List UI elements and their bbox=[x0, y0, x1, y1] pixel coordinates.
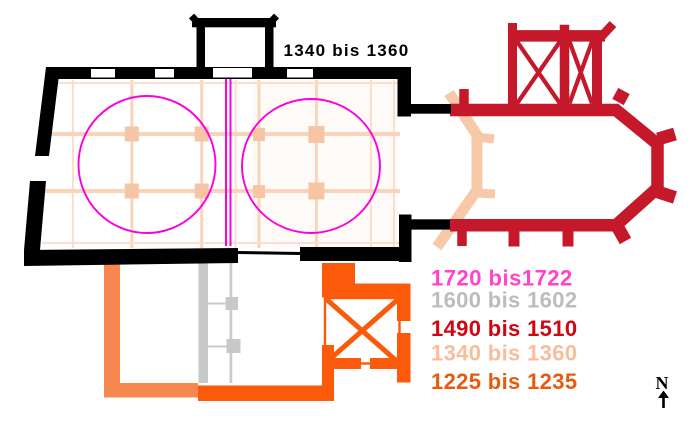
svg-text:N: N bbox=[656, 373, 669, 393]
svg-text:1340 bis 1360: 1340 bis 1360 bbox=[431, 341, 577, 366]
svg-text:1340 bis 1360: 1340 bis 1360 bbox=[284, 41, 410, 60]
svg-text:1225 bis 1235: 1225 bis 1235 bbox=[431, 369, 577, 394]
svg-text:1600 bis 1602: 1600 bis 1602 bbox=[431, 288, 577, 313]
svg-text:1490 bis 1510: 1490 bis 1510 bbox=[431, 316, 577, 341]
